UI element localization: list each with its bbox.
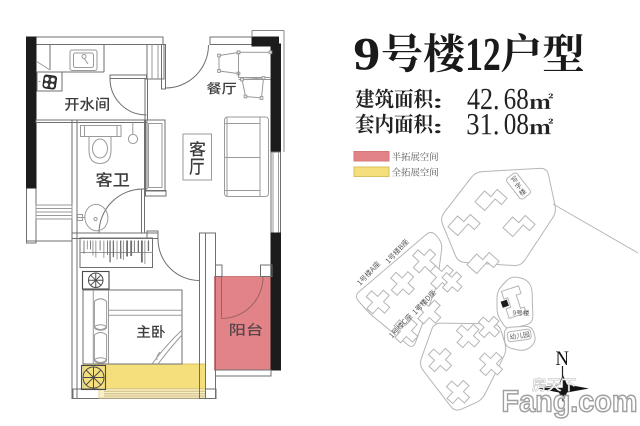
svg-text:Fang.com: Fang.com bbox=[502, 384, 638, 419]
